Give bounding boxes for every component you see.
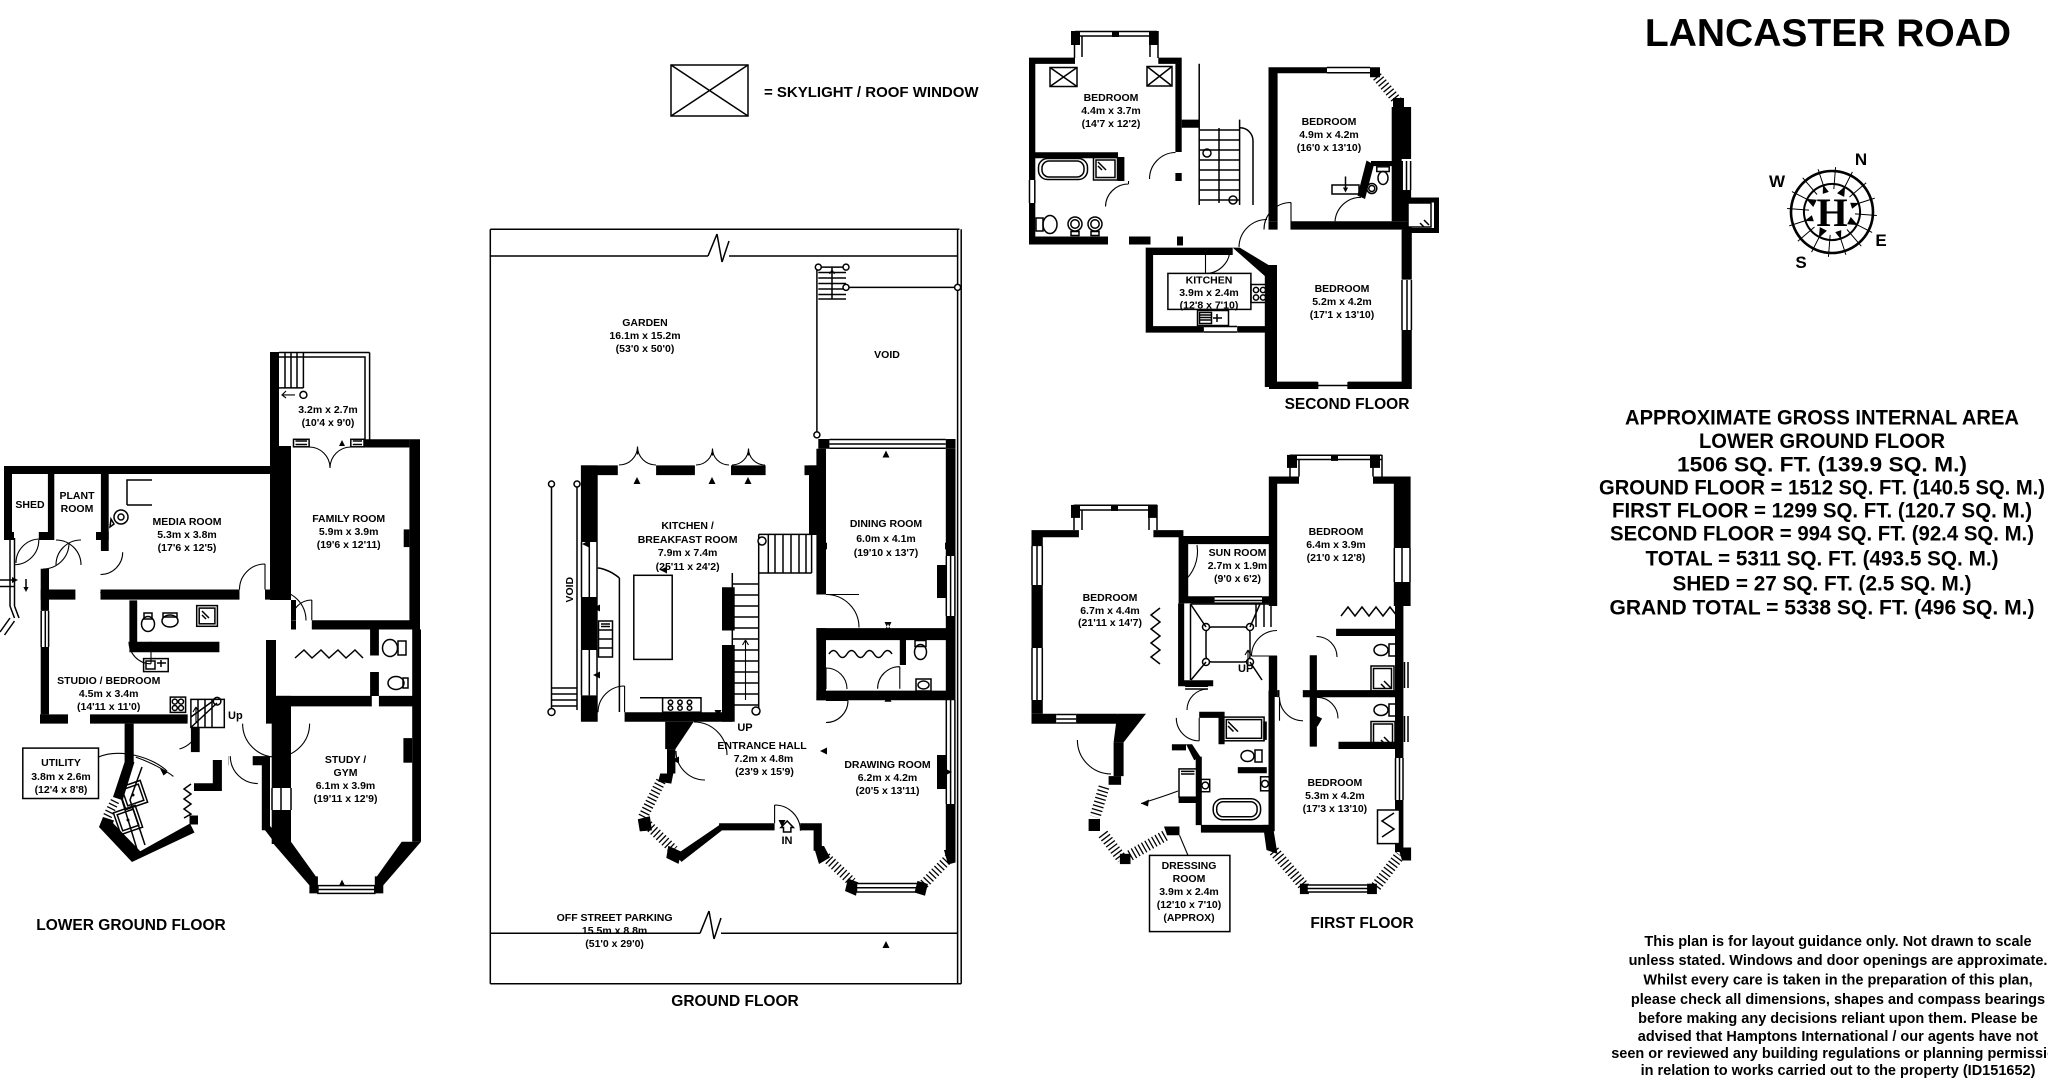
svg-text:3.9m x 2.4m: 3.9m x 2.4m [1179, 287, 1239, 299]
svg-text:LOWER GROUND FLOOR: LOWER GROUND FLOOR [1699, 430, 1945, 453]
svg-text:BEDROOM: BEDROOM [1302, 116, 1357, 128]
svg-text:BEDROOM: BEDROOM [1083, 592, 1138, 604]
svg-text:(51'0 x 29'0): (51'0 x 29'0) [585, 938, 644, 950]
svg-text:This plan is for layout guidan: This plan is for layout guidance only. N… [1644, 934, 2031, 950]
svg-text:(14'11 x 11'0): (14'11 x 11'0) [77, 701, 140, 713]
svg-text:15.5m x 8.8m: 15.5m x 8.8m [582, 925, 647, 937]
svg-text:seen or reviewed any building: seen or reviewed any building regulation… [1611, 1046, 2048, 1062]
svg-text:(17'1 x 13'10): (17'1 x 13'10) [1310, 309, 1375, 321]
svg-text:BREAKFAST ROOM: BREAKFAST ROOM [638, 534, 738, 546]
svg-text:TOTAL = 5311 SQ. FT. (493.5 S: TOTAL = 5311 SQ. FT. (493.5 SQ. M.) [1646, 548, 1999, 571]
svg-text:6.2m x 4.2m: 6.2m x 4.2m [858, 772, 918, 784]
svg-text:BEDROOM: BEDROOM [1307, 777, 1362, 789]
svg-text:DINING ROOM: DINING ROOM [850, 518, 923, 530]
svg-text:W: W [1769, 172, 1786, 191]
svg-text:ROOM: ROOM [1173, 873, 1206, 885]
svg-text:E: E [1875, 231, 1886, 250]
svg-text:IN: IN [782, 835, 793, 847]
svg-text:(17'3 x 13'10): (17'3 x 13'10) [1303, 803, 1368, 815]
svg-text:SECOND FLOOR: SECOND FLOOR [1285, 396, 1410, 413]
svg-text:Whilst every care is taken in: Whilst every care is taken in the prepar… [1643, 973, 2032, 989]
svg-text:1506 SQ. FT. (139.9 SQ. M.): 1506 SQ. FT. (139.9 SQ. M.) [1677, 453, 1967, 476]
svg-text:GROUND FLOOR = 1512 SQ. FT. (1: GROUND FLOOR = 1512 SQ. FT. (140.5 SQ. M… [1599, 477, 2045, 500]
svg-text:FIRST FLOOR: FIRST FLOOR [1310, 915, 1413, 932]
svg-text:(53'0 x 50'0): (53'0 x 50'0) [616, 343, 675, 355]
svg-text:FAMILY ROOM: FAMILY ROOM [312, 513, 385, 525]
svg-text:DRESSING: DRESSING [1162, 860, 1217, 872]
svg-text:6.7m x 4.4m: 6.7m x 4.4m [1080, 605, 1140, 617]
svg-text:H: H [1816, 190, 1847, 235]
svg-text:(23'9 x 15'9): (23'9 x 15'9) [735, 766, 794, 778]
svg-text:= SKYLIGHT / ROOF WINDOW: = SKYLIGHT / ROOF WINDOW [764, 84, 979, 101]
svg-text:7.9m x 7.4m: 7.9m x 7.4m [658, 547, 718, 559]
svg-text:GYM: GYM [334, 767, 358, 779]
svg-text:(17'6 x 12'5): (17'6 x 12'5) [158, 542, 217, 554]
svg-text:Up: Up [228, 710, 243, 722]
svg-text:KITCHEN /: KITCHEN / [661, 520, 714, 532]
svg-text:BEDROOM: BEDROOM [1309, 526, 1364, 538]
svg-text:GARDEN: GARDEN [622, 317, 668, 329]
svg-text:please check all dimensions, s: please check all dimensions, shapes and … [1631, 992, 2045, 1008]
svg-text:16.1m x 15.2m: 16.1m x 15.2m [609, 330, 680, 342]
svg-text:GROUND FLOOR: GROUND FLOOR [671, 993, 798, 1010]
svg-text:(19'10 x 13'7): (19'10 x 13'7) [854, 547, 919, 559]
svg-text:STUDIO / BEDROOM: STUDIO / BEDROOM [57, 675, 161, 687]
svg-text:N: N [1855, 150, 1867, 169]
svg-text:unless stated. Windows and doo: unless stated. Windows and door openings… [1629, 953, 2048, 969]
svg-text:(16'0 x 13'10): (16'0 x 13'10) [1297, 142, 1362, 154]
svg-text:(19'6 x 12'11): (19'6 x 12'11) [317, 539, 381, 551]
svg-text:MEDIA ROOM: MEDIA ROOM [152, 516, 221, 528]
svg-text:OFF STREET PARKING: OFF STREET PARKING [557, 912, 673, 924]
svg-text:advised that Hamptons Internat: advised that Hamptons International / ou… [1638, 1029, 2039, 1045]
svg-text:KITCHEN: KITCHEN [1186, 275, 1233, 287]
svg-text:UP: UP [737, 722, 752, 734]
svg-text:BEDROOM: BEDROOM [1315, 283, 1370, 295]
svg-text:VOID: VOID [874, 349, 900, 361]
svg-text:(21'11 x 14'7): (21'11 x 14'7) [1078, 617, 1142, 629]
svg-text:(9'0 x 6'2): (9'0 x 6'2) [1214, 573, 1261, 585]
svg-text:4.9m x 4.2m: 4.9m x 4.2m [1299, 129, 1359, 141]
svg-text:(12'10 x 7'10): (12'10 x 7'10) [1157, 899, 1222, 911]
svg-text:BEDROOM: BEDROOM [1084, 92, 1139, 104]
svg-text:APPROXIMATE GROSS INTERNAL ARE: APPROXIMATE GROSS INTERNAL AREA [1625, 407, 2019, 430]
svg-text:3.2m x 2.7m: 3.2m x 2.7m [298, 404, 358, 416]
svg-text:SHED = 27 SQ. FT. (2.5 SQ. M.: SHED = 27 SQ. FT. (2.5 SQ. M.) [1673, 573, 1972, 596]
svg-text:LANCASTER ROAD: LANCASTER ROAD [1645, 12, 2011, 55]
svg-text:(12'8 x 7'10): (12'8 x 7'10) [1180, 300, 1239, 312]
svg-text:5.2m x 4.2m: 5.2m x 4.2m [1312, 296, 1372, 308]
svg-text:5.9m x 3.9m: 5.9m x 3.9m [319, 526, 379, 538]
svg-text:SUN ROOM: SUN ROOM [1209, 547, 1267, 559]
svg-text:(21'0 x 12'8): (21'0 x 12'8) [1307, 552, 1366, 564]
svg-text:7.2m x 4.8m: 7.2m x 4.8m [734, 753, 794, 765]
svg-text:4.5m x 3.4m: 4.5m x 3.4m [79, 688, 139, 700]
svg-text:(APPROX): (APPROX) [1163, 912, 1214, 924]
svg-text:2.7m x 1.9m: 2.7m x 1.9m [1208, 560, 1268, 572]
svg-text:4.4m x 3.7m: 4.4m x 3.7m [1081, 105, 1141, 117]
svg-text:3.8m x 2.6m: 3.8m x 2.6m [31, 771, 91, 783]
svg-text:(20'5 x 13'11): (20'5 x 13'11) [856, 785, 920, 797]
svg-text:6.1m x 3.9m: 6.1m x 3.9m [316, 780, 376, 792]
svg-text:FIRST FLOOR = 1299 SQ. FT. (1: FIRST FLOOR = 1299 SQ. FT. (120.7 SQ. M.… [1612, 500, 2032, 523]
svg-text:STUDY /: STUDY / [325, 754, 366, 766]
svg-text:in relation to works carried o: in relation to works carried out to the … [1641, 1063, 2036, 1079]
svg-text:6.4m x 3.9m: 6.4m x 3.9m [1306, 539, 1366, 551]
svg-text:S: S [1795, 253, 1806, 272]
svg-text:GRAND TOTAL = 5338 SQ. FT. (4: GRAND TOTAL = 5338 SQ. FT. (496 SQ. M.) [1610, 597, 2035, 620]
svg-text:(19'11 x 12'9): (19'11 x 12'9) [314, 793, 378, 805]
svg-text:PLANT: PLANT [60, 490, 96, 502]
svg-text:(14'7 x 12'2): (14'7 x 12'2) [1082, 118, 1141, 130]
svg-text:LOWER GROUND FLOOR: LOWER GROUND FLOOR [36, 917, 225, 934]
svg-text:3.9m x 2.4m: 3.9m x 2.4m [1159, 886, 1219, 898]
svg-text:UTILITY: UTILITY [41, 757, 81, 769]
svg-text:5.3m x 3.8m: 5.3m x 3.8m [157, 529, 217, 541]
svg-text:ROOM: ROOM [61, 503, 94, 515]
svg-text:UP: UP [1238, 663, 1253, 675]
svg-text:6.0m x 4.1m: 6.0m x 4.1m [856, 533, 916, 545]
svg-text:(12'4 x 8'8): (12'4 x 8'8) [35, 784, 88, 796]
svg-text:(10'4 x 9'0): (10'4 x 9'0) [302, 417, 355, 429]
svg-text:DRAWING ROOM: DRAWING ROOM [844, 759, 931, 771]
svg-text:before making any decisions re: before making any decisions reliant upon… [1638, 1011, 2038, 1027]
svg-text:VOID: VOID [564, 576, 576, 602]
svg-text:5.3m x 4.2m: 5.3m x 4.2m [1305, 790, 1365, 802]
svg-text:ENTRANCE HALL: ENTRANCE HALL [717, 740, 807, 752]
svg-text:SHED: SHED [15, 499, 45, 511]
svg-text:SECOND FLOOR = 994 SQ. FT. (92: SECOND FLOOR = 994 SQ. FT. (92.4 SQ. M.) [1610, 523, 2034, 546]
